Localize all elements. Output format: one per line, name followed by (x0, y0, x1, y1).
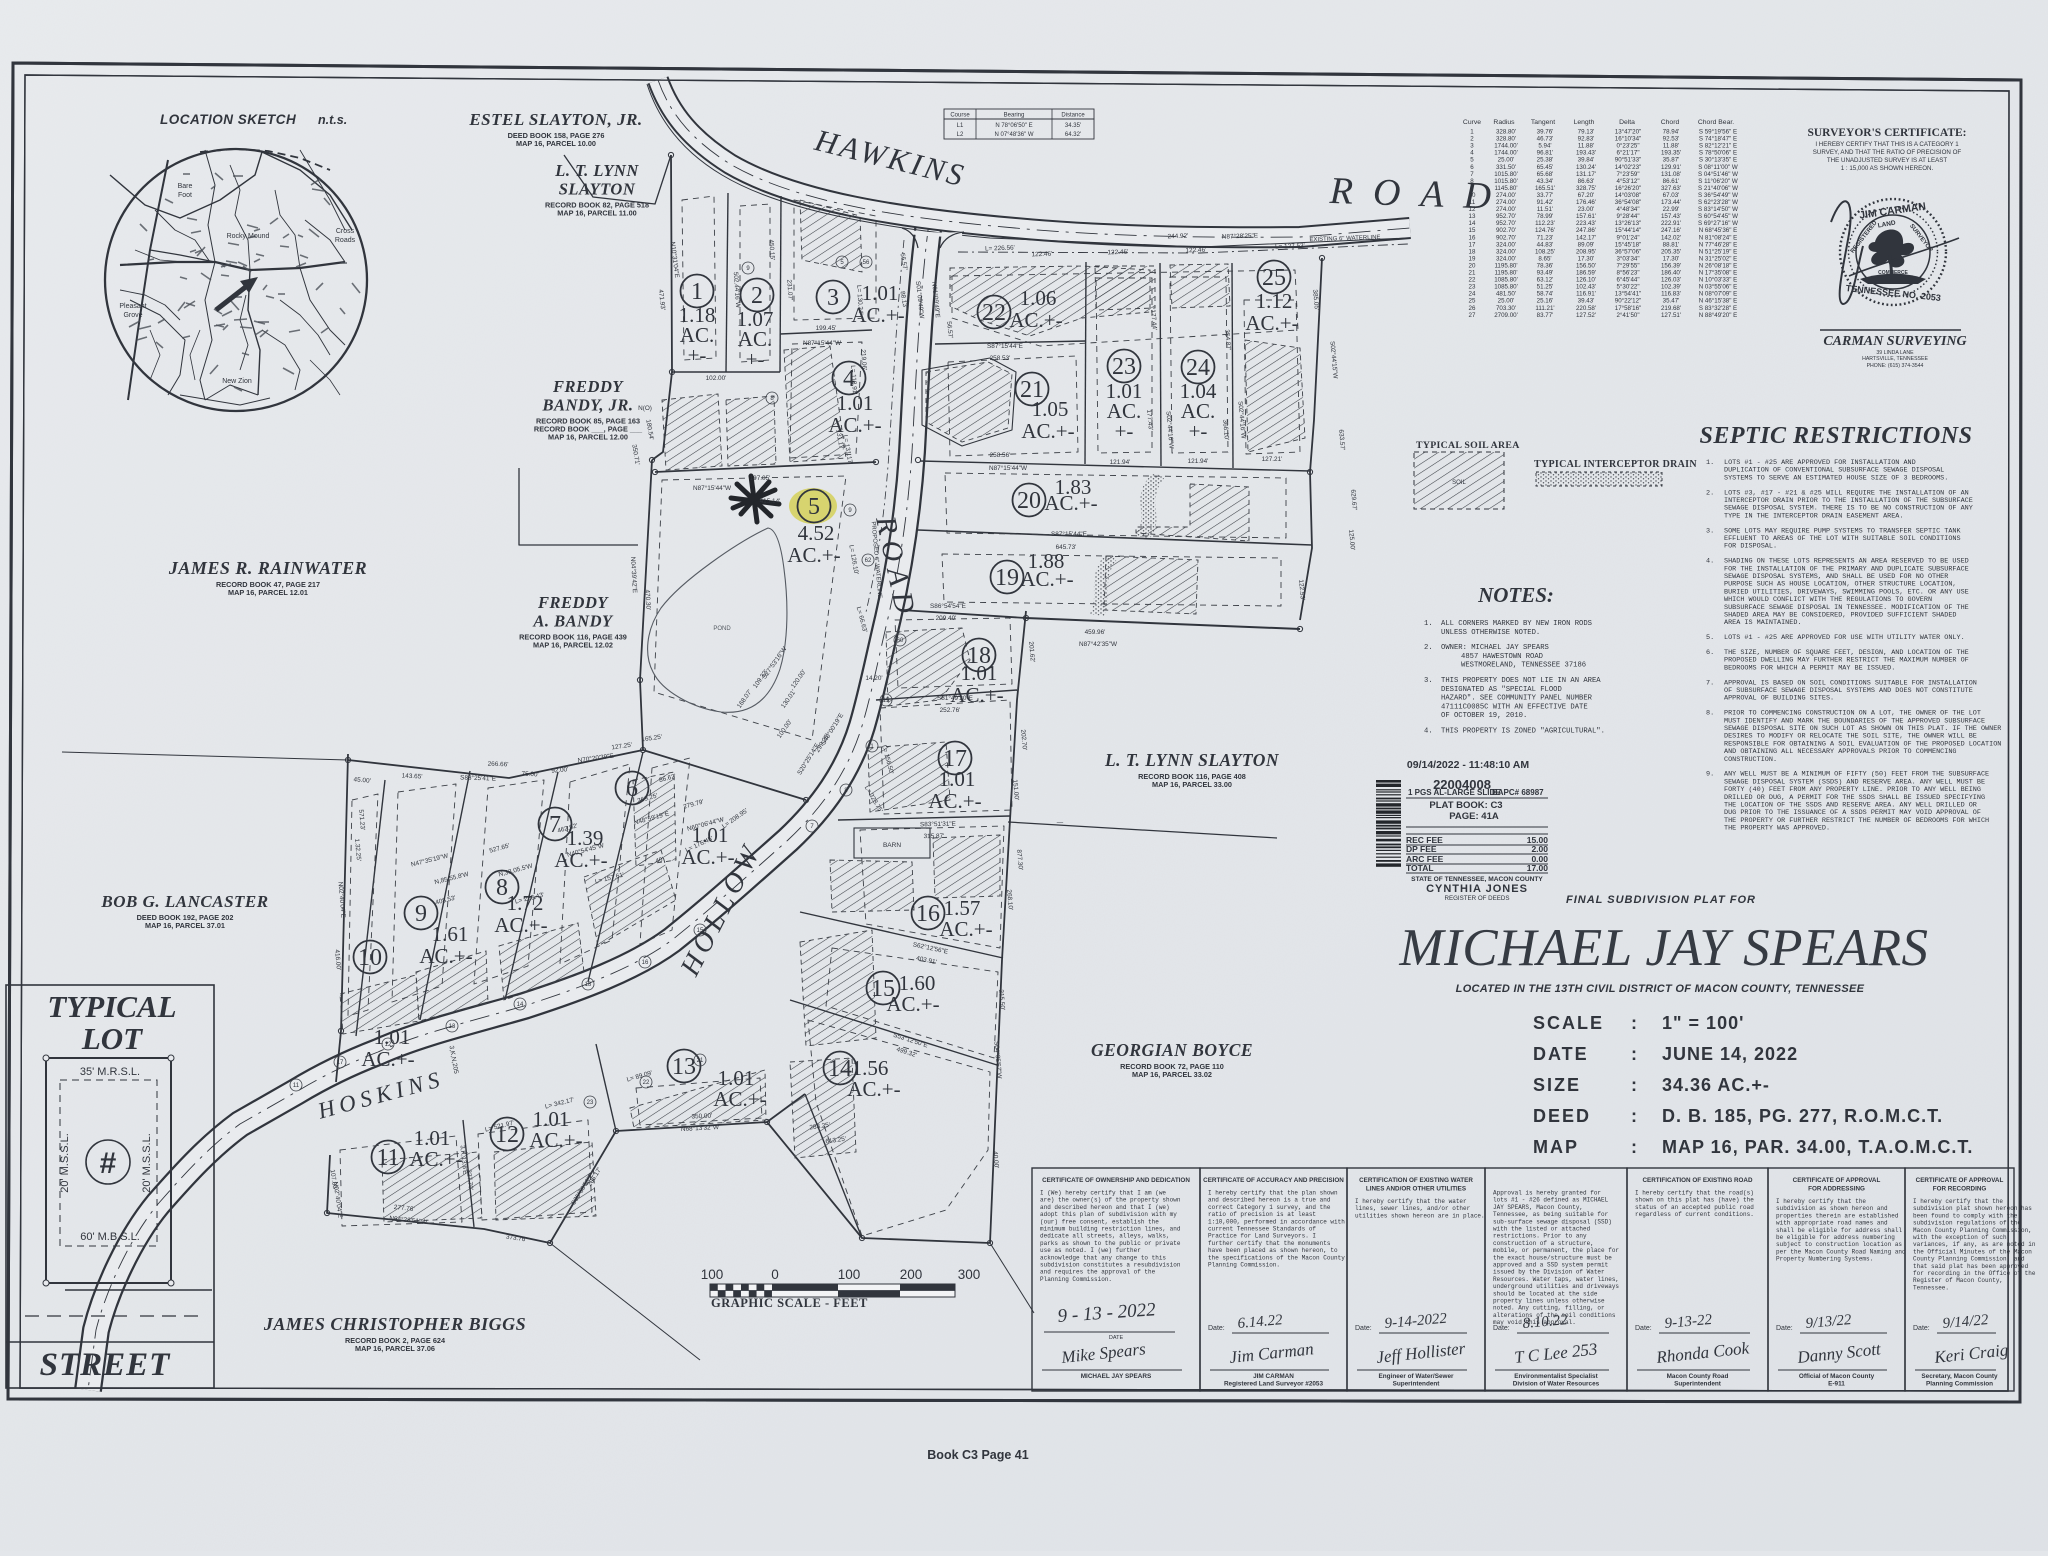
svg-text:116.83': 116.83' (1661, 291, 1681, 298)
svg-text:+-: +- (1115, 419, 1134, 443)
svg-text:142.17': 142.17' (1576, 234, 1596, 241)
svg-text:UNLESS OTHERWISE NOTED.: UNLESS OTHERWISE NOTED. (1441, 629, 1540, 637)
svg-text:PAGE: 41A: PAGE: 41A (1449, 811, 1499, 822)
svg-text:AREA IS MAINTAINED.: AREA IS MAINTAINED. (1724, 619, 1802, 627)
svg-text:186.59': 186.59' (1576, 270, 1596, 277)
svg-text:Roads: Roads (335, 237, 356, 244)
svg-text:112.23': 112.23' (1535, 220, 1555, 227)
svg-text:N(O): N(O) (638, 405, 652, 412)
svg-text:16: 16 (916, 901, 940, 927)
svg-text:25: 25 (1262, 265, 1286, 291)
svg-text:1 : 15,000 AS SHOWN HEREON.: 1 : 15,000 AS SHOWN HEREON. (1841, 165, 1934, 172)
svg-text:Date:: Date: (1208, 1325, 1225, 1332)
svg-text:22: 22 (982, 300, 1006, 326)
svg-text:N 78°06'50" E: N 78°06'50" E (995, 123, 1032, 129)
svg-text:Register of Macon County,: Register of Macon County, (1913, 1277, 2003, 1284)
svg-text:33.77': 33.77' (1537, 192, 1554, 199)
svg-text:83.77': 83.77' (1537, 312, 1554, 319)
svg-text:S 62°23'28" W: S 62°23'28" W (1698, 199, 1738, 206)
svg-text:252.76': 252.76' (940, 707, 961, 714)
svg-text:92.83': 92.83' (1578, 136, 1595, 143)
svg-text:71.23': 71.23' (1537, 234, 1554, 241)
svg-text:FOR RECORDING: FOR RECORDING (1933, 1186, 1987, 1193)
svg-text:correct Category 1 survey, and: correct Category 1 survey, and the (1208, 1204, 1331, 1211)
svg-text:315.87': 315.87' (924, 833, 945, 840)
svg-text:LINES AND/OR OTHER UTILITIES: LINES AND/OR OTHER UTILITIES (1366, 1186, 1466, 1193)
svg-text:SURVEY, AND THAT THE RATIO OF: SURVEY, AND THAT THE RATIO OF PRECISION … (1813, 149, 1962, 156)
svg-text:DATE: DATE (1533, 1044, 1589, 1064)
svg-text:231.07': 231.07' (785, 279, 793, 300)
svg-text:Foot: Foot (178, 192, 192, 199)
svg-text:the Official Minutes of the Ma: the Official Minutes of the Macon (1913, 1248, 2032, 1255)
svg-text:THIS PROPERTY DOES NOT LIE IN: THIS PROPERTY DOES NOT LIE IN AN AREA (1441, 677, 1601, 685)
svg-text:165.51': 165.51' (1535, 185, 1555, 192)
svg-text:MAP 16, PARCEL 37.01: MAP 16, PARCEL 37.01 (145, 921, 225, 930)
svg-text:GRAPHIC SCALE - FEET: GRAPHIC SCALE - FEET (711, 1296, 868, 1310)
svg-text:New Zion: New Zion (222, 378, 252, 385)
svg-text:415.14': 415.14' (760, 498, 781, 505)
svg-text:L2: L2 (957, 132, 964, 138)
svg-text:92.53': 92.53' (1663, 136, 1680, 143)
svg-text:JAMES CHRISTOPHER BIGGS: JAMES CHRISTOPHER BIGGS (263, 1314, 526, 1334)
svg-text:121.94': 121.94' (1110, 459, 1131, 466)
svg-text:ROAD: ROAD (1328, 170, 1512, 218)
svg-text:Macon County Planning Commissi: Macon County Planning Commission, (1913, 1227, 2032, 1234)
svg-text:be eligible for address number: be eligible for address numbering (1776, 1234, 1895, 1241)
svg-text:S 69°27'16" W: S 69°27'16" W (1698, 220, 1738, 227)
svg-text:MICHAEL JAY SPEARS: MICHAEL JAY SPEARS (1081, 1373, 1152, 1380)
svg-text:DP FEE: DP FEE (1406, 844, 1437, 854)
svg-text:S86°54'54"E: S86°54'54"E (930, 602, 966, 610)
svg-text:22: 22 (1469, 277, 1476, 284)
svg-text:36°57'06": 36°57'06" (1615, 248, 1642, 255)
svg-text:per the Macon County Road Nami: per the Macon County Road Naming and (1776, 1248, 1906, 1255)
svg-text:9°28'44": 9°28'44" (1616, 213, 1639, 220)
svg-text:7: 7 (1470, 171, 1474, 178)
svg-text:209.40': 209.40' (936, 615, 957, 622)
svg-text:FREDDY: FREDDY (537, 593, 609, 612)
svg-text:S 60°54'45" W: S 60°54'45" W (1698, 213, 1738, 220)
svg-text:39.76': 39.76' (1537, 129, 1554, 136)
svg-text:construction of a structure,: construction of a structure, (1493, 1240, 1594, 1247)
svg-text:244.92': 244.92' (1167, 233, 1188, 241)
svg-text:AC.+-: AC.+- (886, 992, 939, 1016)
svg-text:327.63': 327.63' (1661, 185, 1681, 192)
svg-text:2709.00': 2709.00' (1494, 312, 1518, 319)
svg-text:S 04°51'46" W: S 04°51'46" W (1698, 171, 1738, 178)
svg-text:ratio of precision is at least: ratio of precision is at least (1208, 1211, 1316, 1218)
svg-text:1.: 1. (1424, 620, 1433, 628)
svg-text:BARN: BARN (883, 842, 901, 849)
svg-text:POND: POND (713, 626, 731, 632)
svg-text:Radius: Radius (1493, 119, 1515, 126)
svg-text:FOR DISPOSAL.: FOR DISPOSAL. (1724, 543, 1777, 551)
svg-text:902.70': 902.70' (1496, 234, 1516, 241)
svg-text:underground utilities and driv: underground utilities and driveways (1493, 1283, 1619, 1290)
svg-text:3: 3 (1470, 143, 1474, 150)
svg-text:173.44': 173.44' (1661, 199, 1681, 206)
svg-text:CERTIFICATE OF APPROVAL: CERTIFICATE OF APPROVAL (1793, 1177, 1881, 1184)
svg-text:OWNER: MICHAEL JAY SPEARS: OWNER: MICHAEL JAY SPEARS (1441, 644, 1549, 652)
svg-text:THE PROPERTY WAS APPROVED.: THE PROPERTY WAS APPROVED. (1724, 825, 1830, 833)
svg-text:1" = 100': 1" = 100' (1662, 1013, 1744, 1033)
svg-text:7°29'55": 7°29'55" (1616, 262, 1639, 269)
svg-text:93.49': 93.49' (1537, 270, 1554, 277)
svg-text:34.36 AC.+-: 34.36 AC.+- (1662, 1075, 1770, 1095)
svg-text:300: 300 (958, 1267, 981, 1282)
svg-text:issued by the Division of Wat: issued by the Division of Water (1493, 1269, 1605, 1276)
svg-text:15: 15 (697, 928, 704, 934)
svg-text:with the listed or attached: with the listed or attached (1493, 1226, 1591, 1233)
svg-text:102.00': 102.00' (706, 375, 727, 382)
svg-text:21: 21 (1469, 270, 1476, 277)
svg-text:11.88': 11.88' (1663, 143, 1679, 150)
svg-text:13°54'41": 13°54'41" (1615, 291, 1642, 298)
svg-text:108.25': 108.25' (1535, 248, 1555, 255)
svg-text:NOTES:: NOTES: (1477, 583, 1554, 607)
svg-text:and described hereon is a true: and described hereon is a true and (1208, 1197, 1331, 1204)
svg-text:I (We) hereby certify that I a: I (We) hereby certify that I am (we (1040, 1190, 1166, 1197)
svg-text:8.65': 8.65' (1538, 255, 1551, 262)
svg-text:45.00': 45.00' (353, 776, 371, 784)
svg-text:3°03'34": 3°03'34" (1616, 255, 1639, 262)
svg-text:Bare: Bare (178, 183, 193, 190)
svg-text:5: 5 (808, 494, 820, 520)
svg-text:176.46': 176.46' (1576, 199, 1596, 206)
svg-text:39.43': 39.43' (1578, 298, 1595, 305)
svg-text:247.86': 247.86' (1576, 227, 1596, 234)
svg-text:Registered Land Surveyor #2053: Registered Land Surveyor #2053 (1224, 1381, 1324, 1388)
svg-text:258.53': 258.53' (990, 355, 1011, 362)
svg-text:25.16': 25.16' (1537, 298, 1554, 305)
svg-text:4.: 4. (1706, 558, 1714, 566)
svg-text:11: 11 (293, 1083, 300, 1089)
svg-text:8: 8 (1470, 178, 1474, 185)
svg-text:CERTIFICATION OF EXISTING WATE: CERTIFICATION OF EXISTING WATER (1359, 1177, 1473, 1184)
svg-text:Grove: Grove (123, 312, 142, 319)
svg-text:1.12: 1.12 (1256, 289, 1293, 313)
svg-text:L. T. LYNN SLAYTON: L. T. LYNN SLAYTON (1104, 750, 1280, 770)
svg-text:Secretary, Macon County: Secretary, Macon County (1921, 1373, 1998, 1380)
svg-text:1.01: 1.01 (862, 281, 899, 305)
svg-text:Property Numbering Systems.: Property Numbering Systems. (1776, 1256, 1873, 1263)
svg-text:13: 13 (672, 1054, 696, 1080)
svg-text:20' M.S.S.L.: 20' M.S.S.L. (141, 1133, 153, 1193)
svg-text:122.46': 122.46' (1031, 251, 1052, 259)
svg-text:that said plat has been approv: that said plat has been approved (1913, 1263, 2029, 1270)
svg-text:129.91': 129.91' (1661, 164, 1681, 171)
svg-text:AC.+-: AC.+- (939, 917, 992, 941)
svg-text:lines, sewer lines, and/or oth: lines, sewer lines, and/or other (1355, 1205, 1471, 1212)
svg-text:65.45': 65.45' (1537, 164, 1554, 171)
svg-text:6: 6 (1470, 164, 1474, 171)
svg-text:10: 10 (1469, 192, 1476, 199)
svg-text:2.: 2. (1706, 489, 1714, 497)
svg-text:OF OCTOBER 19, 2010.: OF OCTOBER 19, 2010. (1441, 712, 1527, 720)
svg-text:126.10': 126.10' (1576, 277, 1596, 284)
svg-text:SLAYTON: SLAYTON (559, 180, 636, 199)
svg-text:I hereby certify that the plan: I hereby certify that the plan shown (1208, 1190, 1338, 1197)
svg-text:223.43': 223.43' (1576, 220, 1596, 227)
svg-text:127.51': 127.51' (1661, 312, 1681, 319)
svg-text:324.00': 324.00' (1496, 255, 1516, 262)
svg-text:GEORGIAN BOYCE: GEORGIAN BOYCE (1091, 1040, 1253, 1060)
svg-text:324.00': 324.00' (1496, 241, 1516, 248)
svg-text:MAP 16, PAR. 34.00, T.A.O.M.C.: MAP 16, PAR. 34.00, T.A.O.M.C.T. (1662, 1137, 1973, 1157)
svg-text:REGISTER OF DEEDS: REGISTER OF DEEDS (1445, 895, 1510, 902)
svg-text:JUNE 14, 2022: JUNE 14, 2022 (1662, 1044, 1798, 1064)
svg-text:1 PGS AL-LARGE SLIDE: 1 PGS AL-LARGE SLIDE (1408, 788, 1501, 797)
svg-text:3.: 3. (1706, 527, 1714, 535)
svg-text:Distance: Distance (1061, 113, 1085, 119)
svg-text:1015.80': 1015.80' (1494, 178, 1518, 185)
svg-text:1.05: 1.05 (1032, 397, 1069, 421)
svg-text:4°48'34": 4°48'34" (1616, 206, 1639, 213)
svg-text:Environmentalist Specialist: Environmentalist Specialist (1514, 1373, 1598, 1380)
svg-text:THIS PROPERTY IS ZONED "AGRICU: THIS PROPERTY IS ZONED "AGRICULTURAL". (1441, 728, 1605, 736)
svg-text:199.45': 199.45' (816, 325, 837, 332)
svg-text:regardless of current conditio: regardless of current conditions. (1635, 1211, 1754, 1218)
svg-text:35' M.R.S.L.: 35' M.R.S.L. (80, 1066, 140, 1078)
svg-text::: : (1631, 1106, 1637, 1126)
svg-text:COMMERCE: COMMERCE (1878, 270, 1908, 276)
svg-text:LOTS #1 - #25 ARE APPROVED FOR: LOTS #1 - #25 ARE APPROVED FOR USE WITH … (1724, 634, 1965, 642)
svg-text:78.36': 78.36' (1537, 262, 1554, 269)
svg-text:DATE: DATE (1109, 1335, 1124, 1341)
svg-text:LOCATED IN THE 13TH CIVIL DIST: LOCATED IN THE 13TH CIVIL DISTRICT OF MA… (1456, 983, 1865, 995)
svg-text:JIM CARMAN: JIM CARMAN (1253, 1373, 1294, 1380)
svg-text:208.95': 208.95' (1576, 248, 1596, 255)
svg-text:274.00': 274.00' (1496, 192, 1516, 199)
svg-text:AC.+-: AC.+- (1009, 308, 1062, 332)
svg-text:58.74': 58.74' (1537, 291, 1554, 298)
svg-text:TYPICAL INTERCEPTOR DRAIN: TYPICAL INTERCEPTOR DRAIN (1534, 459, 1697, 470)
svg-text:1.06: 1.06 (1020, 286, 1057, 310)
svg-text:1195.80': 1195.80' (1494, 262, 1517, 269)
svg-text:14°03'08": 14°03'08" (1615, 192, 1642, 199)
svg-text:703.30': 703.30' (1496, 305, 1516, 312)
svg-text:shown on this plat has (have): shown on this plat has (have) the (1635, 1197, 1754, 1204)
svg-text:L1: L1 (957, 123, 964, 129)
svg-text:AC.+-: AC.+- (361, 1047, 414, 1071)
svg-text:Approval is hereby granted for: Approval is hereby granted for (1493, 1190, 1601, 1197)
svg-text:Date:: Date: (1493, 1325, 1510, 1332)
svg-text:CONSTRUCTION.: CONSTRUCTION. (1724, 756, 1777, 764)
svg-text:ESTEL SLAYTON, JR.: ESTEL SLAYTON, JR. (468, 110, 642, 129)
svg-text:CERTIFICATE OF OWNERSHIP AND D: CERTIFICATE OF OWNERSHIP AND DEDICATION (1042, 1177, 1190, 1184)
svg-text:Chord: Chord (1661, 119, 1680, 126)
svg-text:18: 18 (585, 982, 592, 988)
svg-text:124.76': 124.76' (1535, 227, 1555, 234)
svg-text:HARTSVILLE, TENNESSEE: HARTSVILLE, TENNESSEE (1862, 356, 1928, 362)
svg-text:S81°49'20"E: S81°49'20"E (937, 694, 973, 702)
svg-text:15°45'18": 15°45'18" (1615, 241, 1642, 248)
svg-text:dedicate all streets, alleys,: dedicate all streets, alleys, walks, (1040, 1233, 1170, 1240)
svg-text:14.20': 14.20' (865, 675, 882, 682)
svg-text:L= 127.53': L= 127.53' (1275, 242, 1305, 250)
svg-text:JAY SPEARS, Macon County,: JAY SPEARS, Macon County, (1493, 1204, 1583, 1211)
svg-text:1195.80': 1195.80' (1494, 270, 1517, 277)
svg-text:122.46': 122.46' (1185, 247, 1206, 255)
svg-text:14: 14 (517, 1002, 524, 1008)
svg-text:N87°28'25"E: N87°28'25"E (1222, 231, 1259, 240)
svg-text:should be located at the side: should be located at the side (1493, 1290, 1598, 1297)
svg-text:1.01: 1.01 (961, 661, 998, 685)
svg-text:N 26°08'18" E: N 26°08'18" E (1699, 262, 1738, 269)
svg-text:0°23'25": 0°23'25" (1616, 143, 1639, 150)
svg-text:20: 20 (1469, 262, 1476, 269)
svg-text:TYPICAL: TYPICAL (47, 989, 176, 1024)
svg-text:17: 17 (1469, 241, 1476, 248)
svg-text:65.68': 65.68' (1537, 171, 1554, 178)
svg-text:adopt this plan of subdivision: adopt this plan of subdivision with my (1040, 1211, 1177, 1218)
svg-text:111.21': 111.21' (1535, 305, 1554, 312)
svg-text:CYNTHIA JONES: CYNTHIA JONES (1426, 883, 1528, 895)
svg-text:6.: 6. (1706, 649, 1714, 657)
svg-text:Rocky Mound: Rocky Mound (227, 233, 270, 240)
svg-text:MAP 16, PARCEL 12.02: MAP 16, PARCEL 12.02 (533, 641, 613, 650)
svg-text:L. T. LYNN: L. T. LYNN (554, 161, 639, 180)
svg-text:1.01: 1.01 (939, 767, 976, 791)
svg-text:331.50': 331.50' (1496, 164, 1516, 171)
svg-text:102.43': 102.43' (1576, 284, 1596, 291)
svg-text:S 21°40'06" W: S 21°40'06" W (1698, 185, 1738, 192)
svg-text:116.91': 116.91' (1576, 291, 1596, 298)
svg-text:324.00': 324.00' (1496, 248, 1516, 255)
svg-text:I hereby certify that the: I hereby certify that the (1913, 1198, 2003, 1205)
svg-text:36°54'08": 36°54'08" (1615, 199, 1642, 206)
svg-text:9: 9 (415, 901, 427, 927)
svg-text:328.80': 328.80' (1496, 129, 1516, 136)
svg-text:MAP 16, PARCEL 33.02: MAP 16, PARCEL 33.02 (1132, 1070, 1212, 1079)
svg-text:AC.+-: AC.+- (419, 944, 472, 968)
svg-text:restrictions. Prior to any: restrictions. Prior to any (1493, 1233, 1587, 1240)
svg-text:25.00': 25.00' (1498, 157, 1515, 164)
svg-text:51.25': 51.25' (1537, 284, 1554, 291)
svg-text:19: 19 (995, 565, 1019, 591)
svg-text:n.t.s.: n.t.s. (318, 113, 347, 127)
svg-text:and described hereon and that: and described hereon and that I (we) (1040, 1204, 1170, 1211)
svg-text:9°01'24": 9°01'24" (1616, 234, 1639, 241)
svg-text:219.06': 219.06' (859, 349, 867, 370)
svg-text::: : (1631, 1044, 1637, 1064)
svg-text:Curve: Curve (1463, 119, 1481, 126)
svg-text:DESIGNATED AS "SPECIAL FLOOD: DESIGNATED AS "SPECIAL FLOOD (1441, 686, 1562, 694)
svg-text:23: 23 (1112, 354, 1136, 380)
svg-text:N87°42'35"W: N87°42'35"W (1079, 640, 1118, 648)
svg-text:6°45'44": 6°45'44" (1616, 277, 1639, 284)
svg-text:S 59°19'56" E: S 59°19'56" E (1699, 129, 1737, 136)
svg-text:+-: +- (1189, 419, 1208, 443)
svg-text:121.94': 121.94' (1188, 458, 1209, 465)
svg-text:N 81°08'24" E: N 81°08'24" E (1699, 234, 1738, 241)
svg-text:15°44'14": 15°44'14" (1615, 227, 1642, 234)
svg-text:with the exception of such: with the exception of such (1913, 1234, 2007, 1241)
svg-text:CERTIFICATE OF ACCURACY AND PR: CERTIFICATE OF ACCURACY AND PRECISION (1203, 1177, 1344, 1184)
svg-text:127.52': 127.52' (1576, 312, 1596, 319)
svg-text:127.21': 127.21' (1262, 456, 1283, 463)
svg-text:LOCATION SKETCH: LOCATION SKETCH (160, 112, 296, 127)
svg-text:220.58': 220.58' (1576, 305, 1596, 312)
svg-text:1744.00': 1744.00' (1494, 150, 1518, 157)
svg-text:193.35': 193.35' (1661, 150, 1681, 157)
svg-text:645.73': 645.73' (1056, 544, 1077, 551)
svg-text:S 08°11'00" W: S 08°11'00" W (1698, 164, 1738, 171)
svg-text:JAMES R. RAINWATER: JAMES R. RAINWATER (168, 558, 367, 578)
svg-text:25: 25 (1469, 298, 1476, 305)
svg-text:13°26'13": 13°26'13" (1615, 220, 1642, 227)
svg-text:143.65': 143.65' (402, 772, 423, 780)
svg-text:39.84': 39.84' (1578, 157, 1595, 164)
svg-text:157.61': 157.61' (1576, 213, 1596, 220)
svg-text:AC.+-: AC.+- (847, 1077, 900, 1101)
svg-text:AC.+-: AC.+- (713, 1087, 766, 1111)
svg-text:FOR ADDRESSING: FOR ADDRESSING (1808, 1186, 1865, 1193)
svg-text:SIZE: SIZE (1533, 1075, 1581, 1095)
svg-text:2: 2 (1470, 136, 1474, 143)
svg-text:MAP 16, PARCEL 12.00: MAP 16, PARCEL 12.00 (548, 433, 628, 442)
svg-text:D. B. 185, PG. 277, R.O.M.C.T.: D. B. 185, PG. 277, R.O.M.C.T. (1662, 1106, 1943, 1126)
svg-text:131.08': 131.08' (1661, 171, 1681, 178)
svg-text:SURVEYOR'S CERTIFICATE:: SURVEYOR'S CERTIFICATE: (1807, 127, 1966, 139)
svg-text:S 78°50'06" E: S 78°50'06" E (1699, 150, 1737, 157)
svg-text:16°26'20": 16°26'20" (1615, 185, 1642, 192)
svg-text:35.47': 35.47' (1663, 298, 1680, 305)
svg-text:AC.+-: AC.+- (1044, 491, 1097, 515)
svg-text:MICHAEL JAY SPEARS: MICHAEL JAY SPEARS (1398, 919, 1928, 977)
svg-text:46.73': 46.73' (1537, 136, 1554, 143)
svg-text:current Tennessee Standards of: current Tennessee Standards of (1208, 1226, 1316, 1233)
svg-text:13: 13 (1469, 213, 1476, 220)
svg-text:193.43': 193.43' (1576, 150, 1596, 157)
svg-text:Book C3 Page 41: Book C3 Page 41 (927, 1448, 1028, 1462)
svg-text:20' M.S.S.L.: 20' M.S.S.L. (59, 1133, 71, 1193)
svg-text:BEDROOMS FOR WHICH A PERMIT MA: BEDROOMS FOR WHICH A PERMIT MAY BE ISSUE… (1724, 664, 1895, 672)
svg-text:Tennessee, as being suitable f: Tennessee, as being suitable for (1493, 1211, 1609, 1218)
svg-text:78.94': 78.94' (1663, 129, 1680, 136)
svg-text:I hereby certify that the: I hereby certify that the (1776, 1198, 1866, 1205)
svg-text:11.51': 11.51' (1537, 206, 1553, 213)
svg-text:5: 5 (1470, 157, 1474, 164)
svg-text:266.66': 266.66' (488, 761, 509, 769)
svg-text:Date:: Date: (1355, 1325, 1372, 1332)
svg-text:1744.00': 1744.00' (1494, 143, 1518, 150)
svg-text:STATE OF TENNESSEE, MACON COUN: STATE OF TENNESSEE, MACON COUNTY (1411, 876, 1543, 883)
svg-text:16: 16 (642, 960, 649, 966)
svg-text:use as noted. I (we) further: use as noted. I (we) further (1040, 1247, 1141, 1254)
svg-text:AC.+-: AC.+- (787, 543, 840, 567)
svg-text:23.00': 23.00' (1578, 206, 1595, 213)
svg-text:197.05': 197.05' (750, 475, 771, 482)
svg-text:parks as shown to the public o: parks as shown to the public or private (1040, 1240, 1181, 1247)
svg-text:L= 226.56': L= 226.56' (985, 244, 1015, 252)
svg-text:Practice for Land Surveyors.: Practice for Land Surveyors. I (1208, 1233, 1316, 1240)
svg-text:88.81': 88.81' (1663, 241, 1680, 248)
svg-text:SYSTEMS TO SERVE AN ESTIMATED: SYSTEMS TO SERVE AN ESTIMATED HOUSE SIZE… (1724, 474, 1948, 482)
svg-text:been found to comply with the: been found to comply with the (1913, 1212, 2018, 1219)
svg-text:258.56': 258.56' (990, 452, 1011, 459)
svg-text:47111C0085C WITH AN EFFECTIVE: 47111C0085C WITH AN EFFECTIVE DATE (1441, 703, 1588, 711)
svg-text:4: 4 (1470, 150, 1474, 157)
svg-text:5.94': 5.94' (1538, 143, 1551, 150)
svg-text:AC.+-: AC.+- (494, 913, 547, 937)
svg-text:subdivision constitutes a resu: subdivision constitutes a resubdivision (1040, 1262, 1181, 1269)
svg-text:Planning Commission.: Planning Commission. (1208, 1262, 1280, 1269)
svg-text:N 88°49'20" E: N 88°49'20" E (1699, 312, 1738, 319)
svg-text:21: 21 (697, 1058, 704, 1064)
svg-text:mobile, or permanent, the plac: mobile, or permanent, the place for (1493, 1247, 1619, 1254)
svg-text:90°22'12": 90°22'12" (1615, 298, 1642, 305)
